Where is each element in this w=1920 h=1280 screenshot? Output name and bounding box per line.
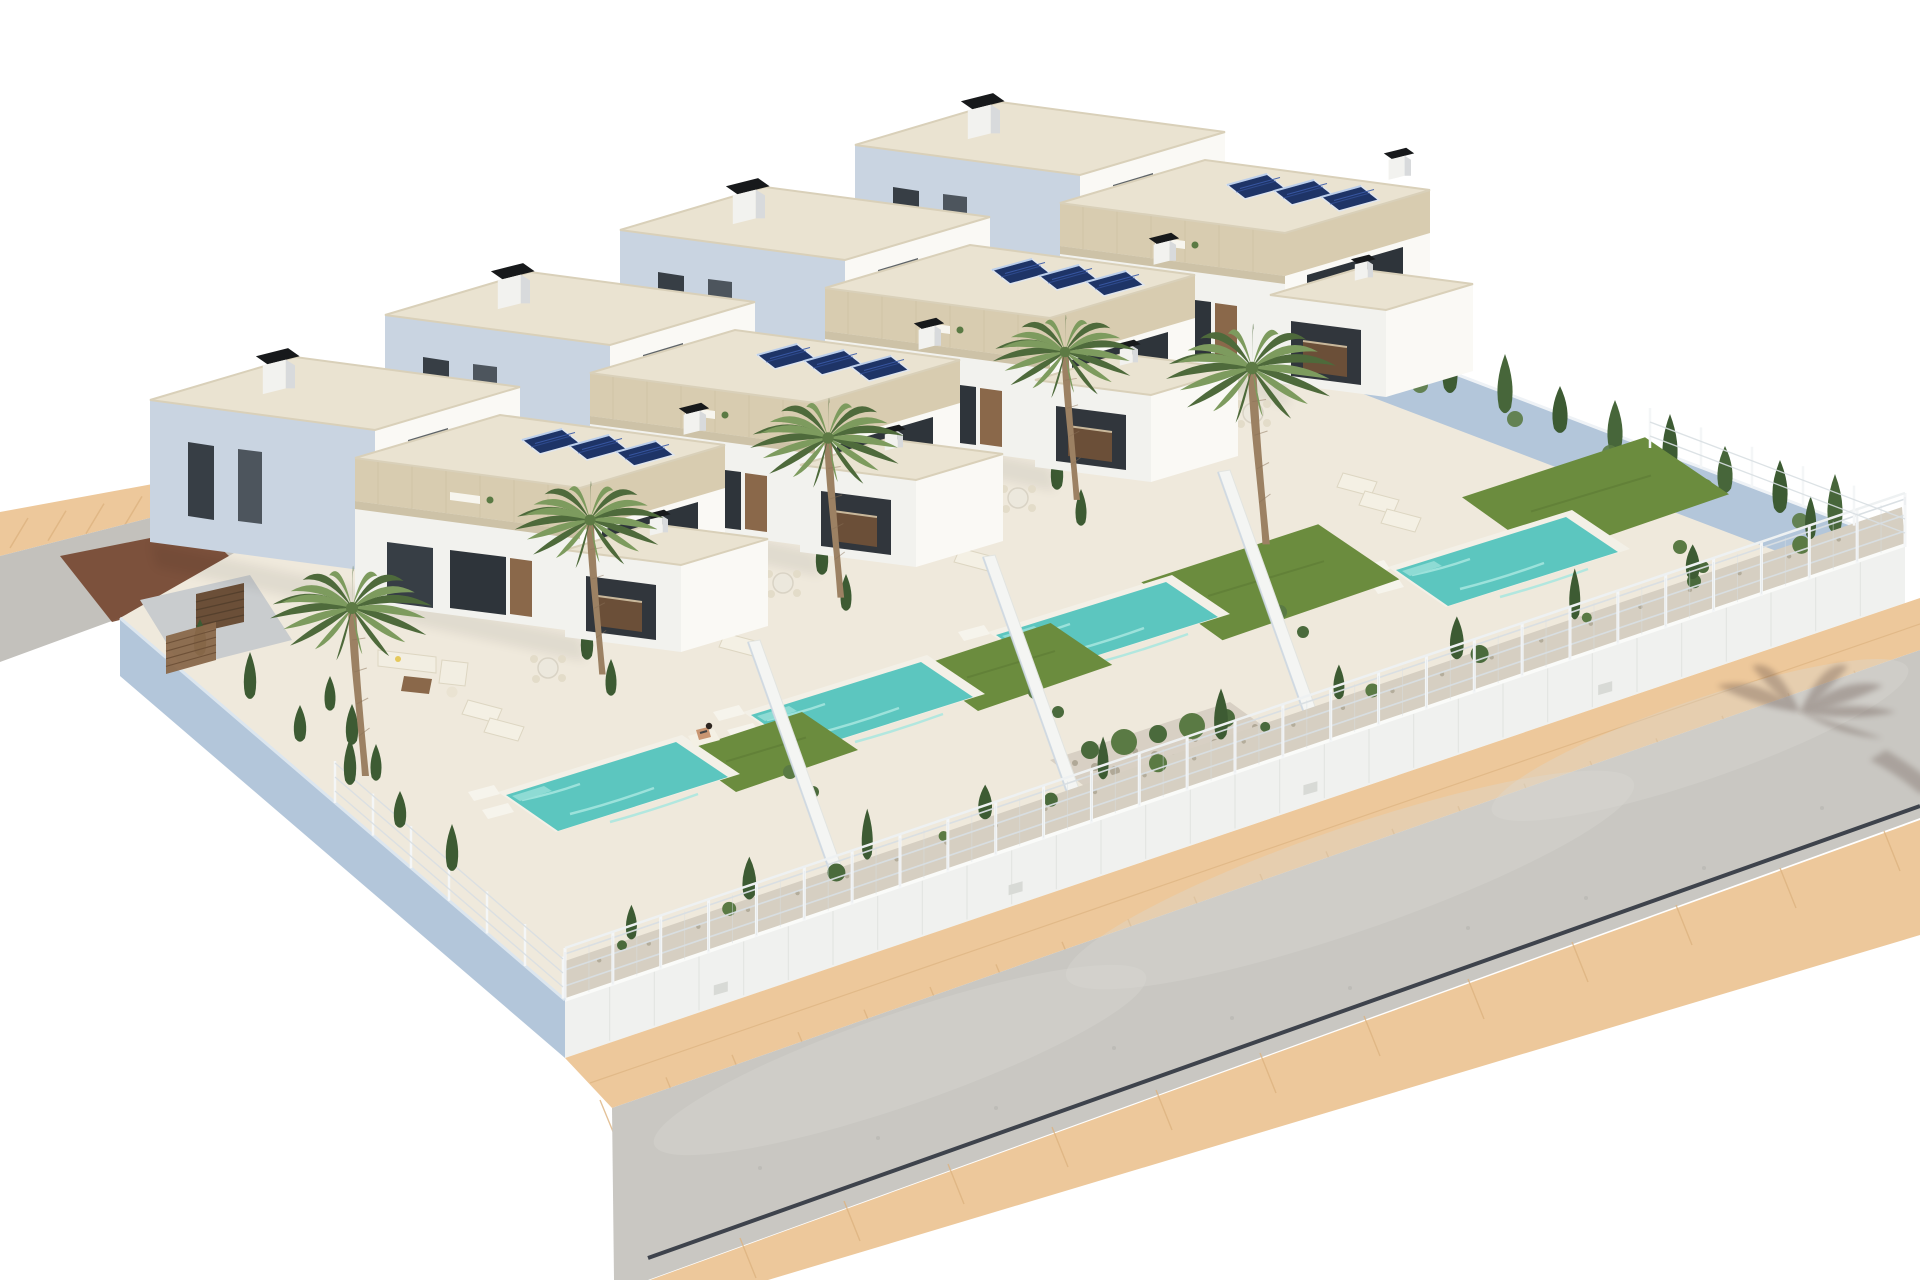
- balcony-plant: [957, 327, 964, 334]
- chimney-body: [1154, 241, 1170, 265]
- dining-table: [538, 658, 558, 678]
- dining-chair: [793, 589, 801, 597]
- chimney: [1384, 148, 1414, 180]
- dining-chair: [532, 675, 540, 683]
- asphalt-speckle: [758, 1166, 762, 1170]
- shrub: [1052, 706, 1064, 718]
- chimney-body: [968, 105, 991, 140]
- asphalt-speckle: [1702, 866, 1706, 870]
- asphalt-speckle: [1112, 1046, 1116, 1050]
- coffee-table: [401, 676, 432, 694]
- chimney-body: [1355, 261, 1368, 281]
- render-canvas: [0, 0, 1920, 1280]
- chimney-body: [919, 326, 935, 350]
- balcony-plant: [487, 497, 494, 504]
- asphalt-speckle: [1348, 986, 1352, 990]
- wood-door-panel: [745, 473, 767, 532]
- sliding-glass-door: [450, 550, 506, 615]
- shrub: [1507, 411, 1523, 427]
- pouf: [447, 687, 458, 698]
- window: [238, 449, 262, 524]
- dining-chair: [1002, 505, 1010, 513]
- asphalt-speckle: [1466, 926, 1470, 930]
- asphalt-speckle: [1230, 1016, 1234, 1020]
- balcony-plant: [1192, 242, 1199, 249]
- leafy-shrub: [1111, 729, 1137, 755]
- dining-chair: [1028, 485, 1036, 493]
- shrub: [827, 863, 845, 881]
- villa-development-render: [0, 0, 1920, 1280]
- chimney-body: [1389, 156, 1405, 180]
- dining-table: [1008, 488, 1028, 508]
- palm-crown-center: [1060, 347, 1071, 358]
- shrub: [1149, 754, 1167, 772]
- cypress-shrub: [1552, 386, 1567, 433]
- dining-chair: [1263, 419, 1271, 427]
- outdoor-sofa: [439, 660, 468, 686]
- shrub: [1792, 536, 1810, 554]
- leafy-shrub: [1081, 741, 1099, 759]
- chimney-body-side: [1405, 156, 1411, 176]
- balcony-plant: [722, 412, 729, 419]
- dining-table: [773, 573, 793, 593]
- pebble: [1072, 760, 1078, 766]
- chimney-body: [684, 411, 700, 435]
- chimney-body: [263, 360, 286, 395]
- palm-crown-center: [346, 602, 358, 614]
- dining-chair: [558, 674, 566, 682]
- dining-chair: [1028, 504, 1036, 512]
- window: [188, 442, 214, 520]
- person-head: [706, 723, 712, 729]
- shrub: [1673, 540, 1687, 554]
- wood-door-panel: [510, 558, 532, 617]
- cypress-shrub: [1497, 354, 1512, 413]
- shrub: [1297, 626, 1309, 638]
- asphalt-speckle: [1820, 806, 1824, 810]
- dining-chair: [767, 590, 775, 598]
- asphalt-speckle: [876, 1136, 880, 1140]
- wood-door-panel: [980, 388, 1002, 447]
- chimney-body: [498, 275, 521, 310]
- chimney-body: [650, 516, 663, 536]
- palm-crown-center: [822, 432, 833, 443]
- dining-chair: [558, 655, 566, 663]
- cypress-shrub: [1772, 460, 1787, 513]
- dining-chair: [530, 655, 538, 663]
- palm-crown-center: [1246, 362, 1259, 375]
- yellow-cushion: [395, 656, 401, 662]
- leafy-shrub: [1149, 725, 1167, 743]
- dining-chair: [1237, 420, 1245, 428]
- chimney-body: [733, 190, 756, 225]
- palm-crown-center: [584, 514, 595, 525]
- dining-chair: [1263, 400, 1271, 408]
- dining-chair: [793, 570, 801, 578]
- asphalt-speckle: [994, 1106, 998, 1110]
- asphalt-speckle: [1584, 896, 1588, 900]
